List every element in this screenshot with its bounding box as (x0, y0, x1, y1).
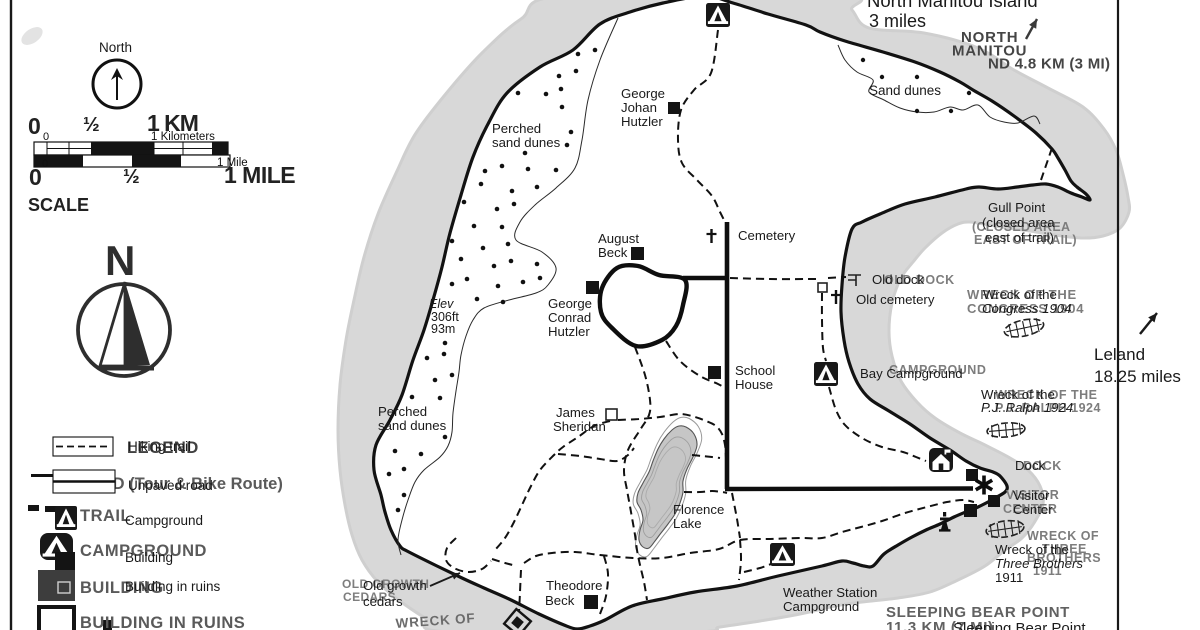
svg-text:Beck: Beck (545, 593, 575, 608)
svg-text:North: North (99, 40, 132, 55)
svg-text:0: 0 (43, 131, 49, 143)
svg-text:0: 0 (28, 113, 41, 139)
svg-text:½: ½ (83, 114, 100, 136)
svg-text:Bay Campground: Bay Campground (860, 366, 963, 381)
svg-text:18.25 miles: 18.25 miles (1094, 367, 1181, 386)
svg-text:(closed area: (closed area (982, 215, 1055, 230)
svg-text:cedars: cedars (363, 594, 403, 609)
svg-text:BUILDING IN RUINS: BUILDING IN RUINS (80, 614, 245, 630)
svg-text:Building: Building (125, 550, 173, 565)
svg-text:Sheridan: Sheridan (553, 419, 606, 434)
svg-text:North Manitou Island: North Manitou Island (867, 0, 1038, 11)
svg-text:Campground: Campground (783, 599, 859, 614)
svg-text:TRAIL: TRAIL (80, 507, 131, 525)
svg-text:Sand dunes: Sand dunes (869, 83, 941, 98)
svg-text:Wreck of the: Wreck of the (983, 287, 1057, 302)
svg-text:Beck: Beck (598, 245, 628, 260)
svg-text:sand dunes: sand dunes (492, 135, 561, 150)
svg-text:Three Brothers: Three Brothers (995, 556, 1083, 571)
svg-text:George: George (621, 86, 665, 101)
svg-text:Sleeping Bear Point: Sleeping Bear Point (953, 620, 1086, 630)
svg-text:Center: Center (1013, 502, 1053, 517)
svg-text:Leland: Leland (1094, 345, 1145, 364)
svg-text:0: 0 (42, 158, 48, 170)
svg-text:Conrad: Conrad (548, 310, 591, 325)
svg-text:Theodore: Theodore (546, 578, 602, 593)
svg-text:Perched: Perched (378, 404, 427, 419)
svg-text:Old cemetery: Old cemetery (856, 292, 935, 307)
svg-text:Florence: Florence (673, 502, 724, 517)
svg-text:ND 4.8 KM (3 MI): ND 4.8 KM (3 MI) (988, 56, 1110, 73)
svg-text:George: George (548, 296, 592, 311)
svg-text:WRECK OF: WRECK OF (1027, 529, 1099, 543)
svg-text:Old dock: Old dock (872, 272, 924, 287)
svg-text:3 miles: 3 miles (869, 11, 926, 31)
svg-text:Cemetery: Cemetery (738, 228, 796, 243)
svg-text:93m: 93m (431, 322, 455, 336)
svg-text:House: House (735, 377, 773, 392)
svg-text:Elev: Elev (429, 297, 454, 311)
svg-text:Hutzler: Hutzler (621, 114, 663, 129)
svg-text:Wreck of the: Wreck of the (995, 542, 1069, 557)
svg-text:Campground: Campground (125, 513, 203, 528)
svg-text:1 MILE: 1 MILE (224, 162, 295, 188)
svg-text:1911: 1911 (995, 570, 1023, 585)
svg-text:N: N (105, 237, 135, 284)
svg-text:SCALE: SCALE (28, 195, 89, 215)
svg-text:Weather Station: Weather Station (783, 585, 877, 600)
svg-text:east of trail): east of trail) (985, 230, 1054, 245)
svg-text:Johan: Johan (621, 100, 657, 115)
svg-text:1 Kilometers: 1 Kilometers (151, 131, 215, 143)
svg-text:Hiking trail: Hiking trail (128, 439, 191, 454)
svg-text:Congress 1904: Congress 1904 (982, 301, 1071, 316)
svg-text:Building in ruins: Building in ruins (125, 579, 221, 594)
svg-text:Old growth: Old growth (363, 578, 427, 593)
svg-text:½: ½ (123, 166, 140, 188)
svg-text:School: School (735, 363, 775, 378)
svg-text:P.J. Ralph 1924: P.J. Ralph 1924 (981, 400, 1073, 415)
svg-text:Visitor: Visitor (1013, 488, 1050, 503)
svg-text:James: James (556, 405, 595, 420)
svg-text:August: August (598, 231, 639, 246)
svg-text:Dock: Dock (1015, 458, 1045, 473)
svg-text:Unpaved road: Unpaved road (128, 478, 213, 493)
svg-text:0: 0 (29, 164, 42, 190)
svg-text:Hutzler: Hutzler (548, 324, 590, 339)
svg-text:Perched: Perched (492, 121, 541, 136)
svg-text:Lake: Lake (673, 516, 702, 531)
svg-text:Gull Point: Gull Point (988, 200, 1046, 215)
svg-text:sand dunes: sand dunes (378, 418, 447, 433)
